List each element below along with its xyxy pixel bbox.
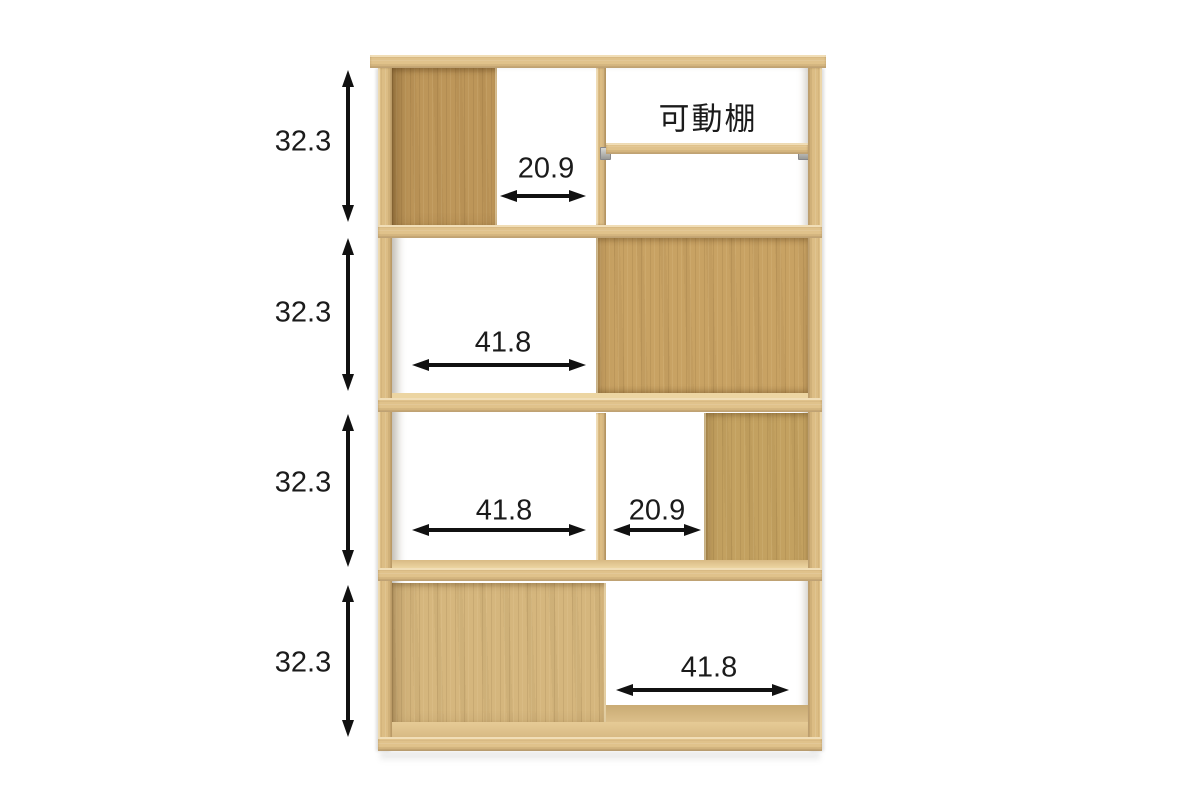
- arrow-shaft: [426, 528, 572, 532]
- vertical-dimension-arrow-tier2: [341, 238, 354, 391]
- vertical-dimension-label-tier2: 32.3: [275, 299, 331, 328]
- horizontal-dimension-arrow-tier1: [500, 189, 586, 202]
- dimension-annotations: 32.3 32.3 32.3 32.3 20.9 41.8 41.8 20.9 …: [0, 0, 1200, 800]
- vertical-dimension-label-tier4: 32.3: [275, 649, 331, 678]
- vertical-dimension-label-tier1: 32.3: [275, 128, 331, 157]
- horizontal-dimension-arrow-tier2: [412, 358, 586, 371]
- horizontal-dimension-arrow-tier4: [616, 683, 789, 696]
- arrow-shaft: [514, 194, 572, 198]
- horizontal-dimension-label-tier4: 41.8: [681, 654, 737, 683]
- arrow-shaft: [346, 428, 350, 553]
- arrow-shaft: [627, 528, 687, 532]
- arrow-shaft: [426, 363, 572, 367]
- vertical-dimension-label-tier3: 32.3: [275, 469, 331, 498]
- horizontal-dimension-label-tier2: 41.8: [475, 329, 531, 358]
- horizontal-dimension-label-tier3-right: 20.9: [629, 497, 685, 526]
- arrow-shaft: [630, 688, 775, 692]
- arrow-shaft: [346, 252, 350, 377]
- horizontal-dimension-label-tier3-left: 41.8: [476, 497, 532, 526]
- vertical-dimension-arrow-tier4: [341, 585, 354, 737]
- horizontal-dimension-label-tier1: 20.9: [518, 155, 574, 184]
- vertical-dimension-arrow-tier3: [341, 414, 354, 567]
- vertical-dimension-arrow-tier1: [341, 70, 354, 222]
- movable-shelf-label: 可動棚: [659, 104, 758, 135]
- arrow-shaft: [346, 599, 350, 723]
- product-dimension-diagram: 32.3 32.3 32.3 32.3 20.9 41.8 41.8 20.9 …: [0, 0, 1200, 800]
- arrow-shaft: [346, 84, 350, 208]
